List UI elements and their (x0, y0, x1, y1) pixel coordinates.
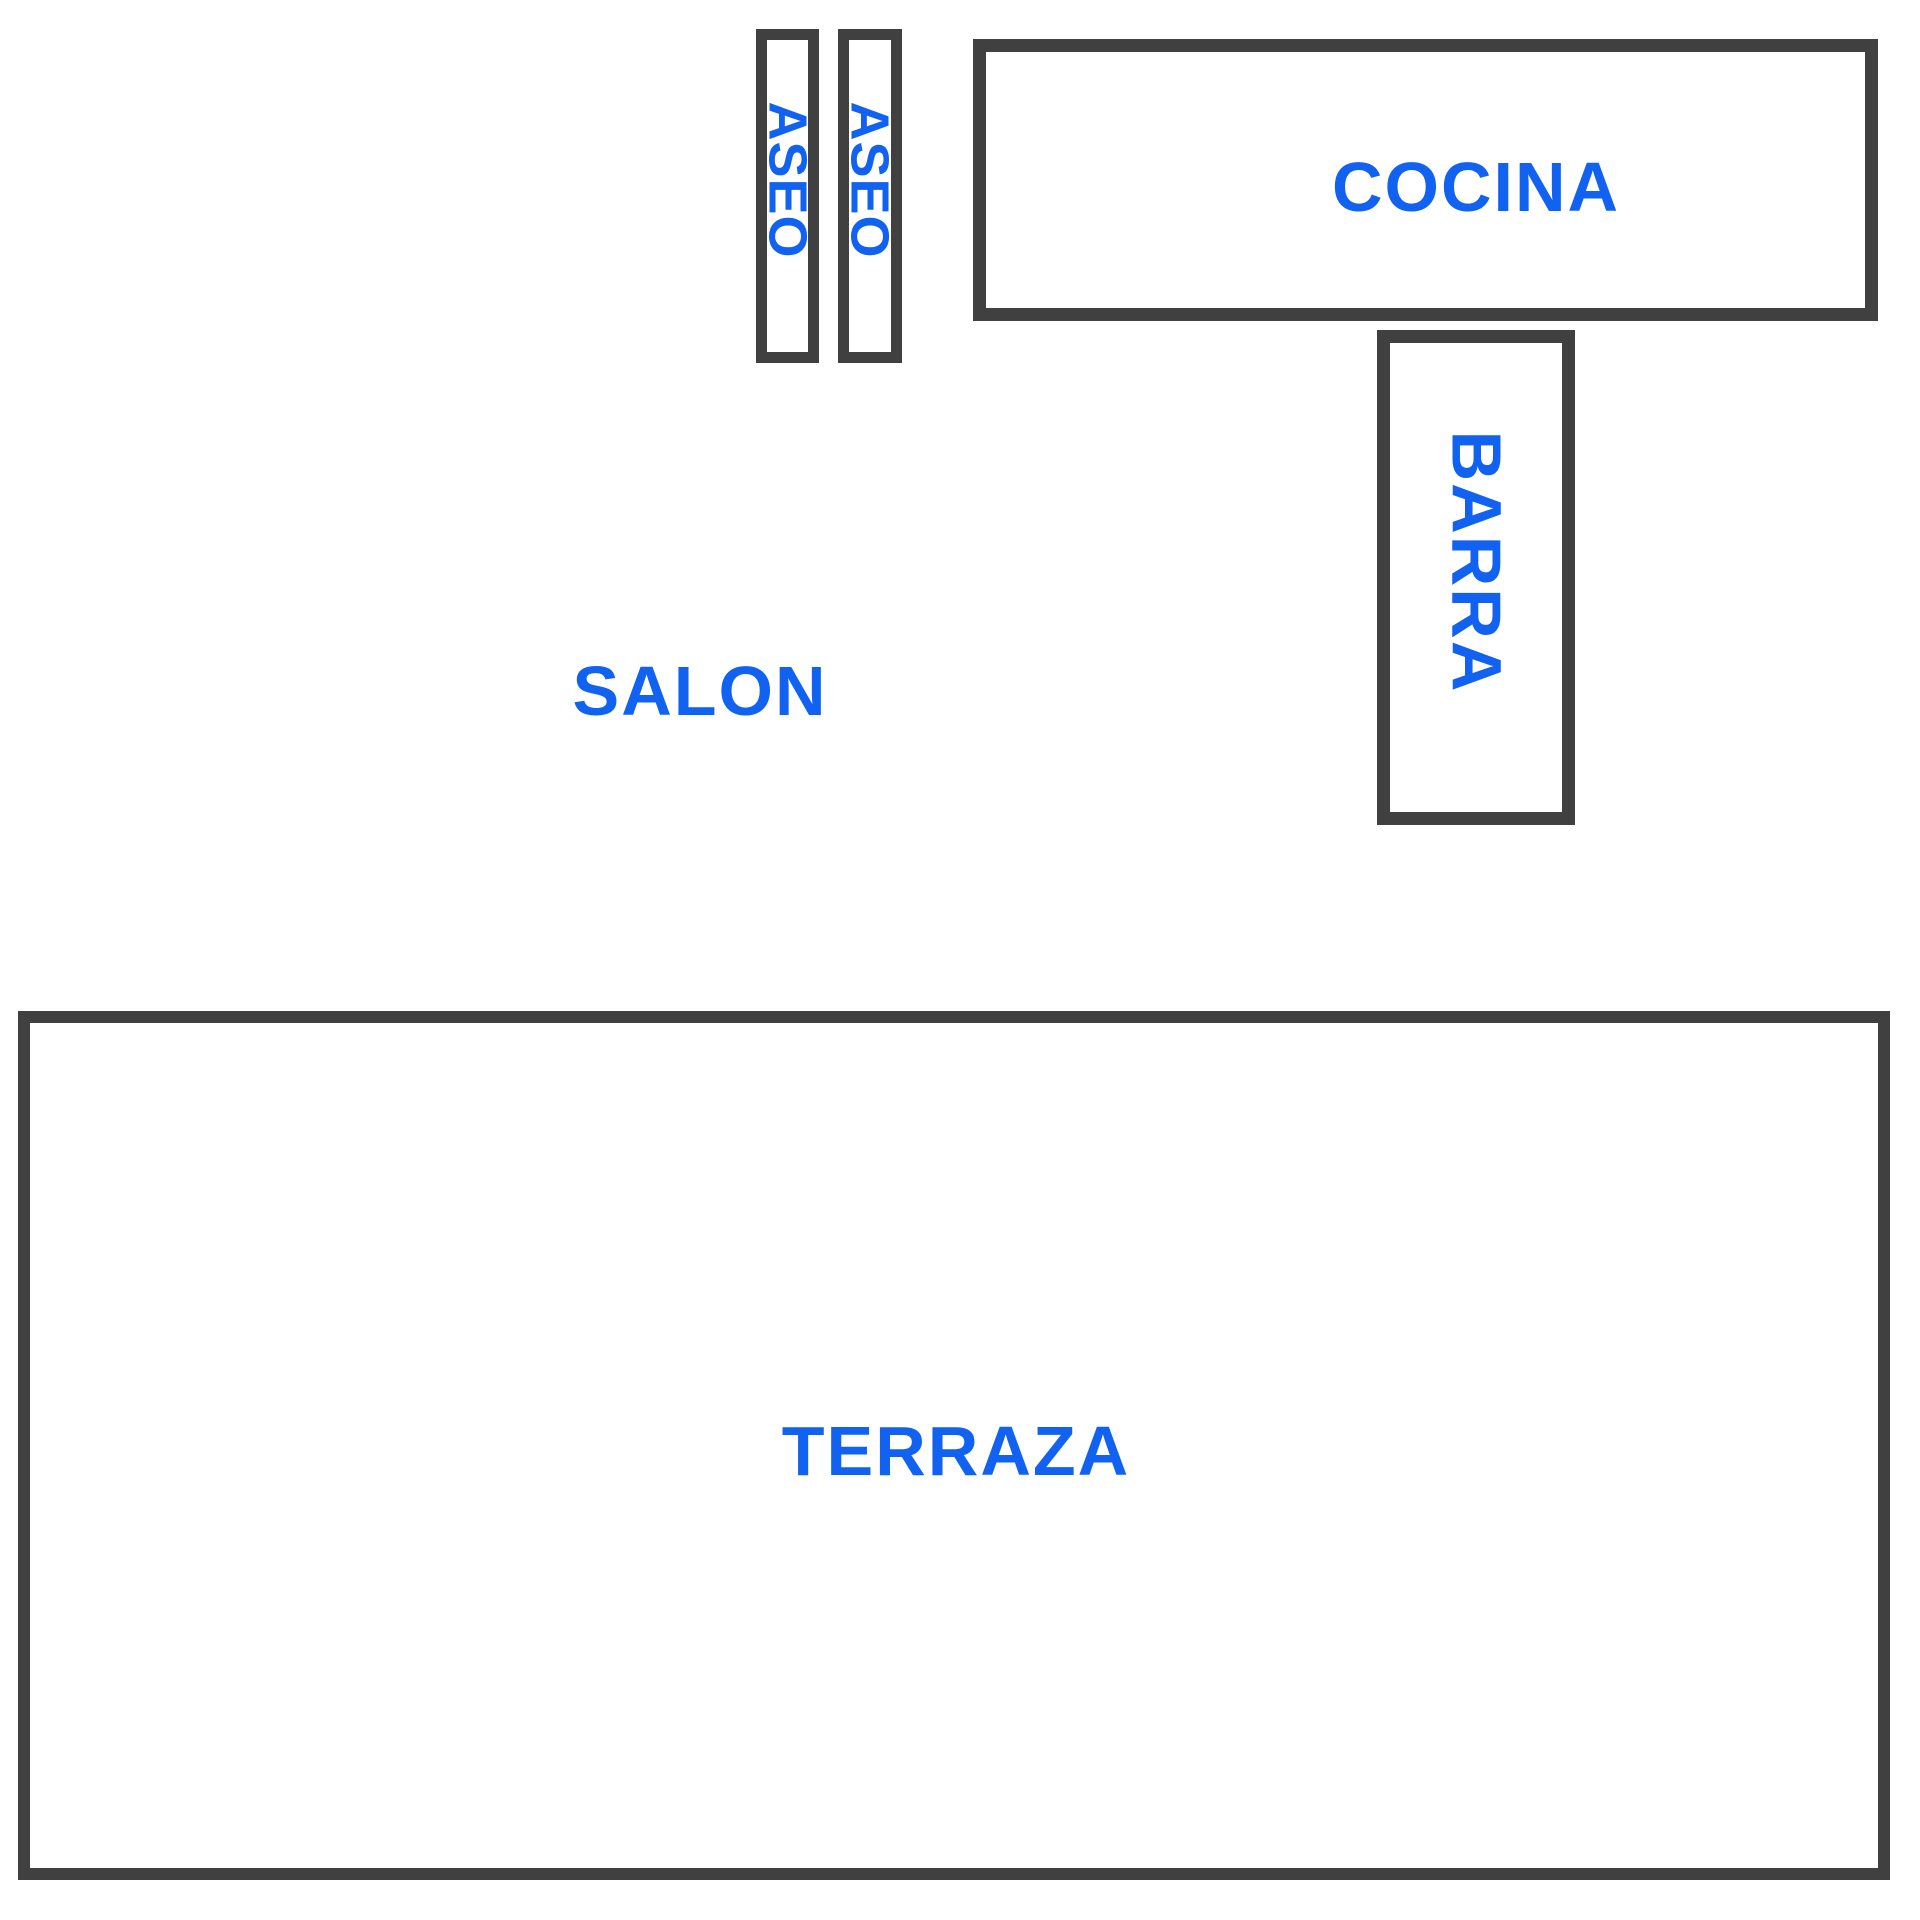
room-aseo-1: ASEO (756, 29, 819, 363)
room-aseo-2: ASEO (838, 29, 902, 363)
room-label-salon: SALON (573, 656, 828, 726)
floor-plan-canvas: ASEO ASEO COCINA BARRA SALON TERRAZA (0, 0, 1920, 1920)
room-label-terraza: TERRAZA (782, 1416, 1130, 1486)
room-label-aseo-1: ASEO (761, 101, 815, 258)
room-label-aseo-2: ASEO (843, 101, 897, 258)
room-label-barra: BARRA (1441, 430, 1511, 693)
room-barra: BARRA (1377, 330, 1575, 825)
room-label-cocina: COCINA (1332, 152, 1620, 222)
